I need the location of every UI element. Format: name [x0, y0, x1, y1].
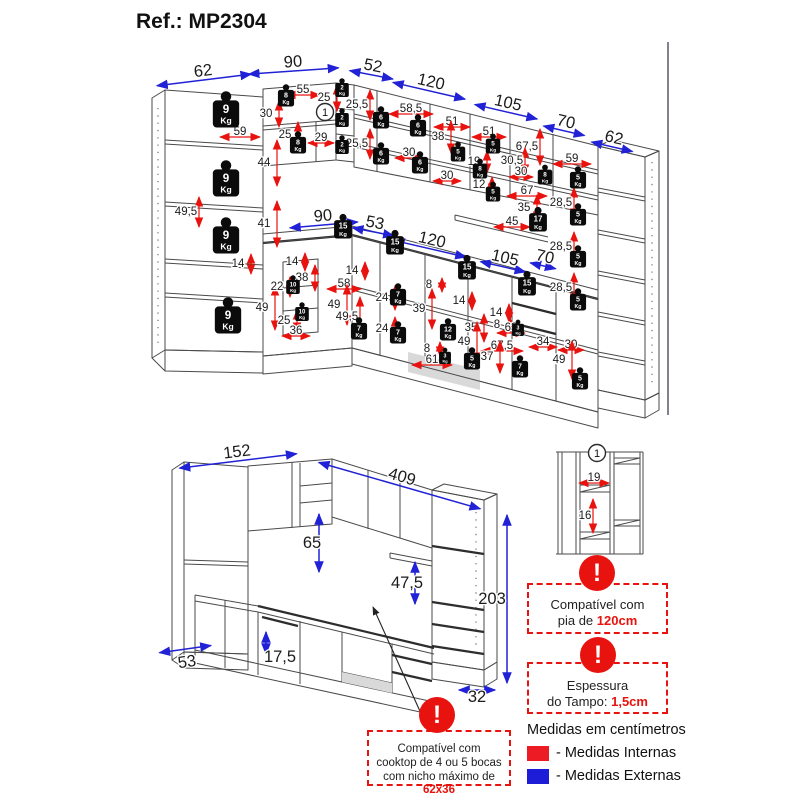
svg-text:8: 8	[478, 165, 482, 172]
dimension-label: 62	[193, 61, 213, 81]
svg-text:Kg: Kg	[575, 182, 582, 188]
dimension-label: 14	[453, 295, 466, 307]
exclamation-glyph: !	[594, 641, 602, 670]
dimension-label: 17,5	[264, 648, 296, 666]
svg-text:Kg: Kg	[575, 261, 582, 267]
svg-text:15: 15	[523, 279, 532, 288]
dimension-label: 8	[426, 279, 432, 291]
dimension-label: 28,5	[550, 282, 572, 294]
svg-text:Kg: Kg	[515, 331, 521, 335]
svg-text:Kg: Kg	[534, 225, 542, 231]
page-title: Ref.: MP2304	[136, 10, 267, 34]
dimension-label: 25	[278, 315, 291, 327]
svg-text:Kg: Kg	[339, 148, 345, 153]
note-sink-line2: pia de 120cm	[529, 613, 666, 629]
dimension-label: 67,5	[491, 340, 513, 352]
weight-capacity-icon: 5Kg	[570, 166, 586, 188]
weight-capacity-icon: 7Kg	[390, 321, 406, 343]
dimension-label: 41	[258, 218, 271, 230]
legend-units-label: Medidas em centímetros	[527, 722, 686, 738]
svg-text:5: 5	[491, 188, 495, 195]
dimension-label: 65	[303, 534, 321, 552]
weight-capacity-icon: 5Kg	[570, 203, 586, 225]
svg-text:9: 9	[223, 103, 230, 116]
legend-internal-label: - Medidas Internas	[556, 745, 676, 761]
detail-view-linework	[556, 452, 643, 554]
dimension-label: 28,5	[550, 197, 572, 209]
weight-capacity-icon: 9Kg	[213, 217, 239, 253]
sink-size-value: 120cm	[597, 613, 637, 628]
svg-text:15: 15	[339, 222, 348, 231]
svg-text:Kg: Kg	[222, 322, 233, 332]
detail-callout-marker: 1	[589, 445, 606, 462]
svg-text:5: 5	[456, 148, 460, 155]
legend-internal-row: - Medidas Internas	[527, 745, 686, 761]
note-countertop-line1: Espessura	[529, 678, 666, 694]
dimension-label: 25,5	[346, 138, 368, 150]
svg-text:Kg: Kg	[523, 289, 531, 295]
svg-text:Kg: Kg	[391, 248, 399, 254]
weight-capacity-icon: 7Kg	[512, 355, 528, 377]
dimension-label: 59	[234, 126, 247, 138]
svg-text:Kg: Kg	[455, 155, 461, 160]
dimension-label: 90	[313, 206, 333, 226]
svg-text:Kg: Kg	[575, 219, 582, 225]
weight-capacity-icon: 5Kg	[570, 245, 586, 267]
svg-text:Kg: Kg	[469, 363, 476, 369]
svg-text:Kg: Kg	[290, 288, 296, 293]
svg-text:Kg: Kg	[415, 130, 422, 136]
dimension-label: 49,5	[175, 206, 197, 218]
svg-text:17: 17	[534, 215, 543, 224]
dimension-label: 49,5	[336, 311, 358, 323]
diagram-canvas: 593055252529444149,51449253622381425,525…	[0, 0, 800, 800]
dimension-label: 22	[271, 281, 284, 293]
svg-text:Kg: Kg	[445, 334, 452, 340]
dimension-label: 24	[376, 323, 389, 335]
svg-text:8: 8	[284, 91, 288, 99]
svg-text:Kg: Kg	[542, 178, 548, 183]
svg-text:5: 5	[576, 173, 580, 181]
weight-capacity-icon: 8Kg	[290, 131, 306, 153]
svg-text:6: 6	[379, 113, 383, 121]
weight-capacity-icon: 6Kg	[410, 114, 426, 136]
svg-text:1: 1	[322, 107, 328, 119]
exclamation-glyph: !	[433, 701, 441, 730]
dimension-label: 16	[579, 510, 592, 522]
dimension-label: 30	[565, 339, 578, 351]
svg-text:6: 6	[416, 121, 420, 129]
weight-capacity-icon: 8Kg	[538, 165, 552, 185]
weight-capacity-icon: 5Kg	[464, 347, 480, 369]
dimension-label: 30	[515, 166, 528, 178]
svg-text:Kg: Kg	[220, 116, 231, 126]
exclamation-glyph: !	[593, 559, 601, 588]
svg-text:5: 5	[576, 252, 580, 260]
note-cooktop-line1: Compatível com	[369, 743, 509, 757]
dimension-label: 30	[441, 170, 454, 182]
svg-text:Kg: Kg	[477, 172, 483, 177]
dimension-label: 39	[413, 303, 426, 315]
dimension-label: 29	[315, 132, 328, 144]
warning-icon: !	[580, 637, 616, 673]
legend-external-label: - Medidas Externas	[556, 768, 681, 784]
cooktop-niche-value: 62x36	[423, 784, 455, 796]
external-measure-swatch	[527, 769, 549, 784]
svg-text:Kg: Kg	[395, 337, 402, 343]
svg-text:7: 7	[396, 328, 400, 336]
weight-capacity-icon: 15Kg	[458, 255, 476, 280]
weight-capacity-icon: 2Kg	[335, 78, 349, 97]
dimension-label: 36	[290, 325, 303, 337]
dimension-label: 61	[426, 354, 439, 366]
dimension-label: 25	[279, 129, 292, 141]
svg-text:Kg: Kg	[463, 273, 471, 279]
weight-capacity-icon: 15Kg	[518, 271, 536, 296]
dimension-label: 409	[386, 465, 417, 490]
svg-text:3: 3	[517, 325, 520, 331]
weight-capacity-icon: 9Kg	[213, 160, 239, 196]
overall-view-linework	[172, 459, 497, 715]
svg-text:Kg: Kg	[575, 304, 582, 310]
svg-text:1: 1	[594, 448, 600, 460]
note-cooktop-line3: com nicho máximo de 62x36	[369, 771, 509, 799]
dimension-label: 25,5	[346, 99, 368, 111]
dimension-label: 49	[328, 299, 341, 311]
svg-text:9: 9	[223, 229, 230, 242]
svg-text:6: 6	[379, 149, 383, 157]
svg-text:5: 5	[470, 354, 474, 362]
detail-callout-marker: 1	[317, 104, 334, 121]
dimension-label: 37	[481, 351, 494, 363]
dimension-label: 34	[537, 336, 550, 348]
svg-text:Kg: Kg	[220, 242, 231, 252]
countertop-thickness-value: 1,5cm	[611, 694, 648, 709]
weight-capacity-icon: 5Kg	[451, 142, 465, 162]
detail-view-internal-dimensions: 1916	[579, 472, 609, 533]
svg-text:Kg: Kg	[339, 232, 347, 238]
weight-capacity-icon: 6Kg	[373, 142, 389, 164]
note-sink-line1: Compatível com	[529, 597, 666, 613]
svg-text:9: 9	[223, 172, 230, 185]
weight-capacity-icon: 5Kg	[572, 367, 588, 389]
internal-measure-swatch	[527, 746, 549, 761]
svg-text:Kg: Kg	[577, 383, 584, 389]
svg-text:Kg: Kg	[378, 122, 385, 128]
weight-capacity-icon: 5Kg	[486, 182, 500, 202]
svg-text:8: 8	[543, 171, 547, 178]
svg-text:Kg: Kg	[517, 371, 524, 377]
dimension-label: 49	[553, 354, 566, 366]
dimension-label: 19	[588, 472, 601, 484]
dimension-label: 53	[177, 652, 198, 672]
dimension-label: 44	[258, 157, 271, 169]
svg-text:7: 7	[518, 362, 522, 370]
dimension-label: 32	[468, 688, 486, 706]
svg-text:7: 7	[357, 324, 361, 332]
weight-capacity-icon: 10Kg	[295, 302, 309, 321]
dimension-label: 55	[297, 84, 310, 96]
dimension-label: 90	[283, 52, 303, 71]
note-cooktop-compatibility: Compatível com cooktop de 4 ou 5 bocas c…	[367, 730, 511, 786]
dimension-label: 14	[232, 258, 245, 270]
dimension-label: 105	[490, 246, 521, 270]
svg-text:Kg: Kg	[299, 315, 305, 320]
weight-capacity-icon: 2Kg	[335, 108, 349, 127]
dimension-label: 51	[446, 116, 459, 128]
svg-text:15: 15	[391, 238, 400, 247]
warning-icon: !	[419, 697, 455, 733]
dimension-label: 67,5	[516, 141, 538, 153]
dimension-label: 24	[376, 292, 389, 304]
weight-capacity-icon: 15Kg	[334, 214, 352, 239]
dimension-label: 49	[256, 302, 269, 314]
dimension-label: 120	[416, 70, 447, 94]
dimension-label: 58	[338, 278, 351, 290]
dimension-label: 49	[458, 336, 471, 348]
svg-text:Kg: Kg	[442, 359, 448, 363]
weight-capacity-icon: 9Kg	[215, 297, 241, 333]
svg-text:Kg: Kg	[283, 100, 290, 106]
dimension-label: 47,5	[391, 574, 423, 592]
dimension-label: 120	[417, 228, 448, 252]
dimension-label: 58,5	[400, 103, 422, 115]
svg-text:Kg: Kg	[295, 147, 302, 153]
svg-text:Kg: Kg	[378, 158, 385, 164]
dimension-label: 35	[518, 202, 531, 214]
dimension-label: 14	[490, 307, 503, 319]
legend: Medidas em centímetros - Medidas Interna…	[527, 722, 686, 784]
svg-text:5: 5	[491, 140, 495, 147]
dimension-label: 67	[521, 185, 534, 197]
note-countertop-line2: do Tampo: 1,5cm	[529, 694, 666, 710]
dimension-label: 14	[346, 265, 359, 277]
warning-icon: !	[579, 555, 615, 591]
svg-text:6: 6	[418, 158, 422, 166]
legend-external-row: - Medidas Externas	[527, 768, 686, 784]
svg-text:Kg: Kg	[417, 167, 424, 173]
dimension-label: 105	[493, 91, 524, 115]
dimension-label: 45	[506, 216, 519, 228]
dimension-label: 53	[364, 212, 385, 233]
weight-capacity-icon: 12Kg	[440, 318, 456, 340]
weight-capacity-icon: 15Kg	[386, 230, 404, 255]
svg-text:Kg: Kg	[395, 299, 402, 305]
svg-text:3: 3	[444, 353, 447, 359]
dimension-label: 35	[465, 322, 478, 334]
svg-text:Kg: Kg	[356, 333, 363, 339]
svg-text:Kg: Kg	[490, 147, 496, 152]
svg-text:Kg: Kg	[339, 91, 345, 96]
svg-text:12: 12	[444, 325, 452, 333]
dimension-label: 8	[494, 319, 500, 331]
weight-capacity-icon: 7Kg	[390, 283, 406, 305]
svg-text:15: 15	[463, 263, 472, 272]
svg-text:8: 8	[296, 138, 300, 146]
dimension-label: 52	[362, 55, 383, 76]
product-dimension-sheet: Ref.: MP2304	[0, 0, 800, 800]
weight-capacity-icon: 3Kg	[439, 348, 451, 364]
svg-text:Kg: Kg	[339, 121, 345, 126]
weight-capacity-icon: 6Kg	[373, 106, 389, 128]
weight-capacity-icon: 17Kg	[529, 207, 547, 232]
svg-text:7: 7	[396, 290, 400, 298]
svg-text:Kg: Kg	[220, 185, 231, 195]
dimension-label: 59	[566, 153, 579, 165]
svg-text:5: 5	[578, 374, 582, 382]
svg-text:5: 5	[576, 210, 580, 218]
dimension-label: 14	[286, 256, 299, 268]
dimension-label: 30	[260, 108, 273, 120]
dimension-label: 12	[473, 179, 486, 191]
svg-text:5: 5	[576, 295, 580, 303]
dimension-label: 152	[222, 441, 252, 462]
svg-text:Kg: Kg	[490, 195, 496, 200]
dimension-label: 203	[478, 590, 506, 608]
svg-text:9: 9	[225, 309, 232, 322]
weight-capacity-icon: 9Kg	[213, 91, 239, 127]
dimension-label: 25	[318, 92, 331, 104]
dimension-label: 38	[432, 131, 445, 143]
note-cooktop-line2: cooktop de 4 ou 5 bocas	[369, 757, 509, 771]
